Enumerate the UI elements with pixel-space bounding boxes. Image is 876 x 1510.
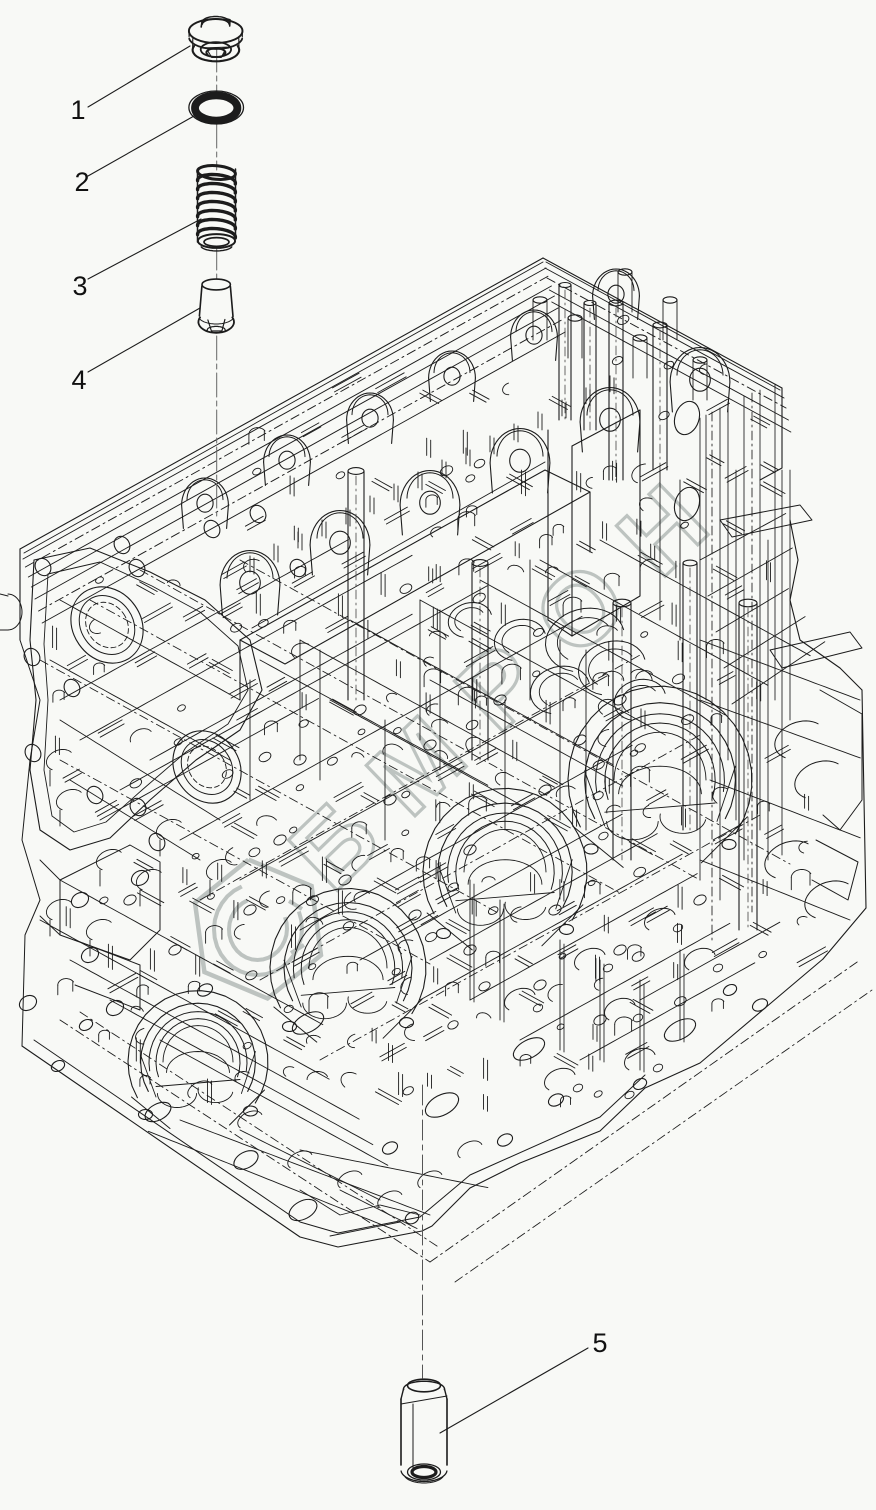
svg-text:1: 1: [70, 95, 85, 125]
svg-text:2: 2: [74, 167, 89, 197]
svg-text:3: 3: [72, 271, 87, 301]
svg-text:5: 5: [592, 1328, 607, 1358]
svg-text:4: 4: [71, 365, 86, 395]
